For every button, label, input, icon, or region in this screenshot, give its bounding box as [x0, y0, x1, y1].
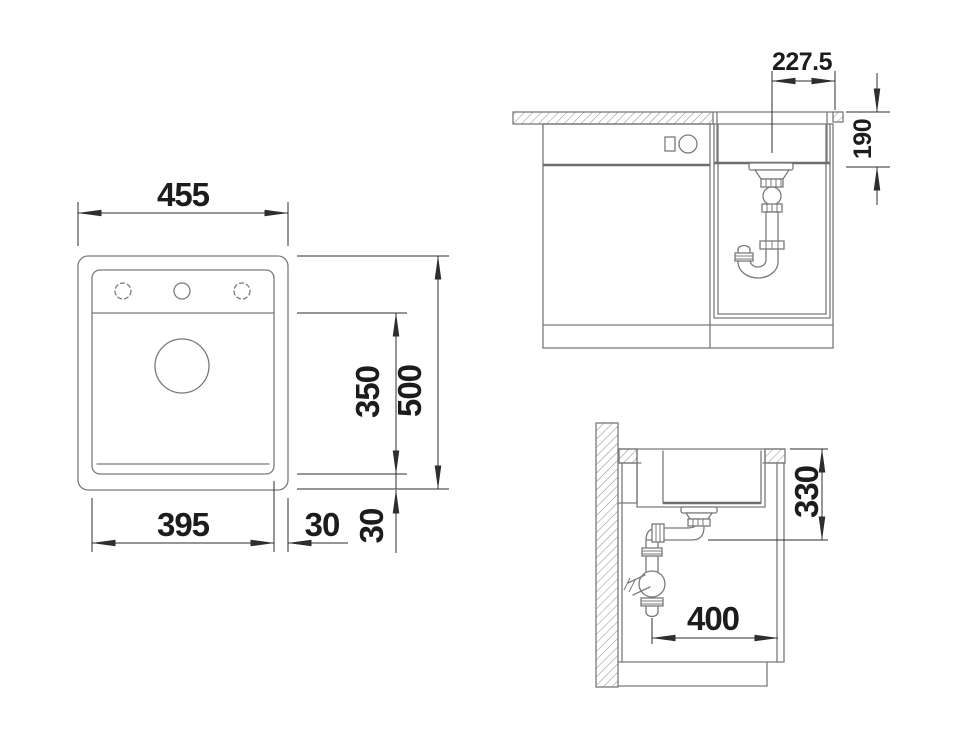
dim-label-trap-clearance: 400: [687, 600, 739, 637]
side-view: 330 400: [596, 423, 828, 687]
tap-hole-optional-left-icon: [115, 283, 131, 299]
trap-collar: [641, 598, 663, 606]
dim-label-overall-width: 455: [157, 176, 210, 213]
dim-label-counter-to-trap: 330: [788, 466, 825, 518]
ball-joint: [763, 187, 781, 205]
plan-sink-outline: [78, 256, 288, 490]
dim-bowl-width: 395: [92, 481, 288, 552]
front-view: 227.5 190: [513, 48, 890, 348]
sink-outer-edge: [78, 256, 288, 490]
dim-label-side-rim: 30: [305, 506, 340, 543]
side-countertop: [618, 449, 785, 463]
trap-arm-cap: [738, 246, 750, 251]
sink-inner-rim-edge: [92, 270, 274, 474]
pipe-end-cap: [646, 612, 658, 617]
knob-icon: [679, 135, 697, 153]
dim-label-front-bowl-depth: 190: [849, 119, 877, 159]
front-drain-trap: [735, 163, 793, 278]
dim-front-bowl-depth: 190: [846, 73, 890, 205]
strainer-nut: [688, 519, 710, 526]
dim-label-drain-offset: 227.5: [772, 48, 833, 76]
trap-body: [639, 571, 665, 597]
plan-tap-holes: [115, 283, 250, 299]
dim-label-bowl-depth: 350: [349, 366, 386, 418]
front-cabinet: [543, 124, 833, 348]
front-countertop: [513, 112, 843, 124]
countertop-section: [513, 112, 713, 124]
plan-view: 455 500 350 30 395: [78, 176, 449, 553]
strainer-flange: [681, 507, 717, 513]
dim-label-bowl-width: 395: [157, 506, 210, 543]
dim-label-front-rim: 30: [353, 509, 390, 544]
pipe-collar: [642, 548, 662, 556]
tap-hole-center-icon: [174, 283, 190, 299]
counter-back-section: [619, 449, 637, 463]
strainer-cup: [686, 513, 712, 519]
dim-side-rim: 30: [288, 506, 348, 543]
dim-label-overall-depth: 500: [391, 365, 428, 417]
technical-drawing-page: 455 500 350 30 395: [0, 0, 960, 753]
counter-front-section: [765, 449, 785, 463]
front-drawer-icons: [665, 135, 697, 153]
wall-section: [596, 423, 618, 687]
dim-overall-width: 455: [78, 176, 288, 246]
elbow-collar: [652, 524, 664, 542]
strainer-flange: [749, 163, 793, 170]
tap-hole-optional-right-icon: [234, 283, 250, 299]
strainer-nut: [761, 179, 783, 187]
side-sink-bowl: [637, 449, 765, 507]
dim-trap-clearance: 400: [652, 600, 778, 644]
control-panel-icon: [665, 137, 675, 151]
strainer-cup: [755, 170, 789, 179]
dim-front-rim: 30: [353, 474, 396, 553]
drain-hole-icon: [155, 339, 209, 393]
drain-pipe: [766, 212, 778, 242]
countertop-right-section: [833, 112, 843, 122]
trap-arm-collar: [735, 253, 753, 261]
technical-drawing-canvas: 455 500 350 30 395: [0, 0, 960, 753]
